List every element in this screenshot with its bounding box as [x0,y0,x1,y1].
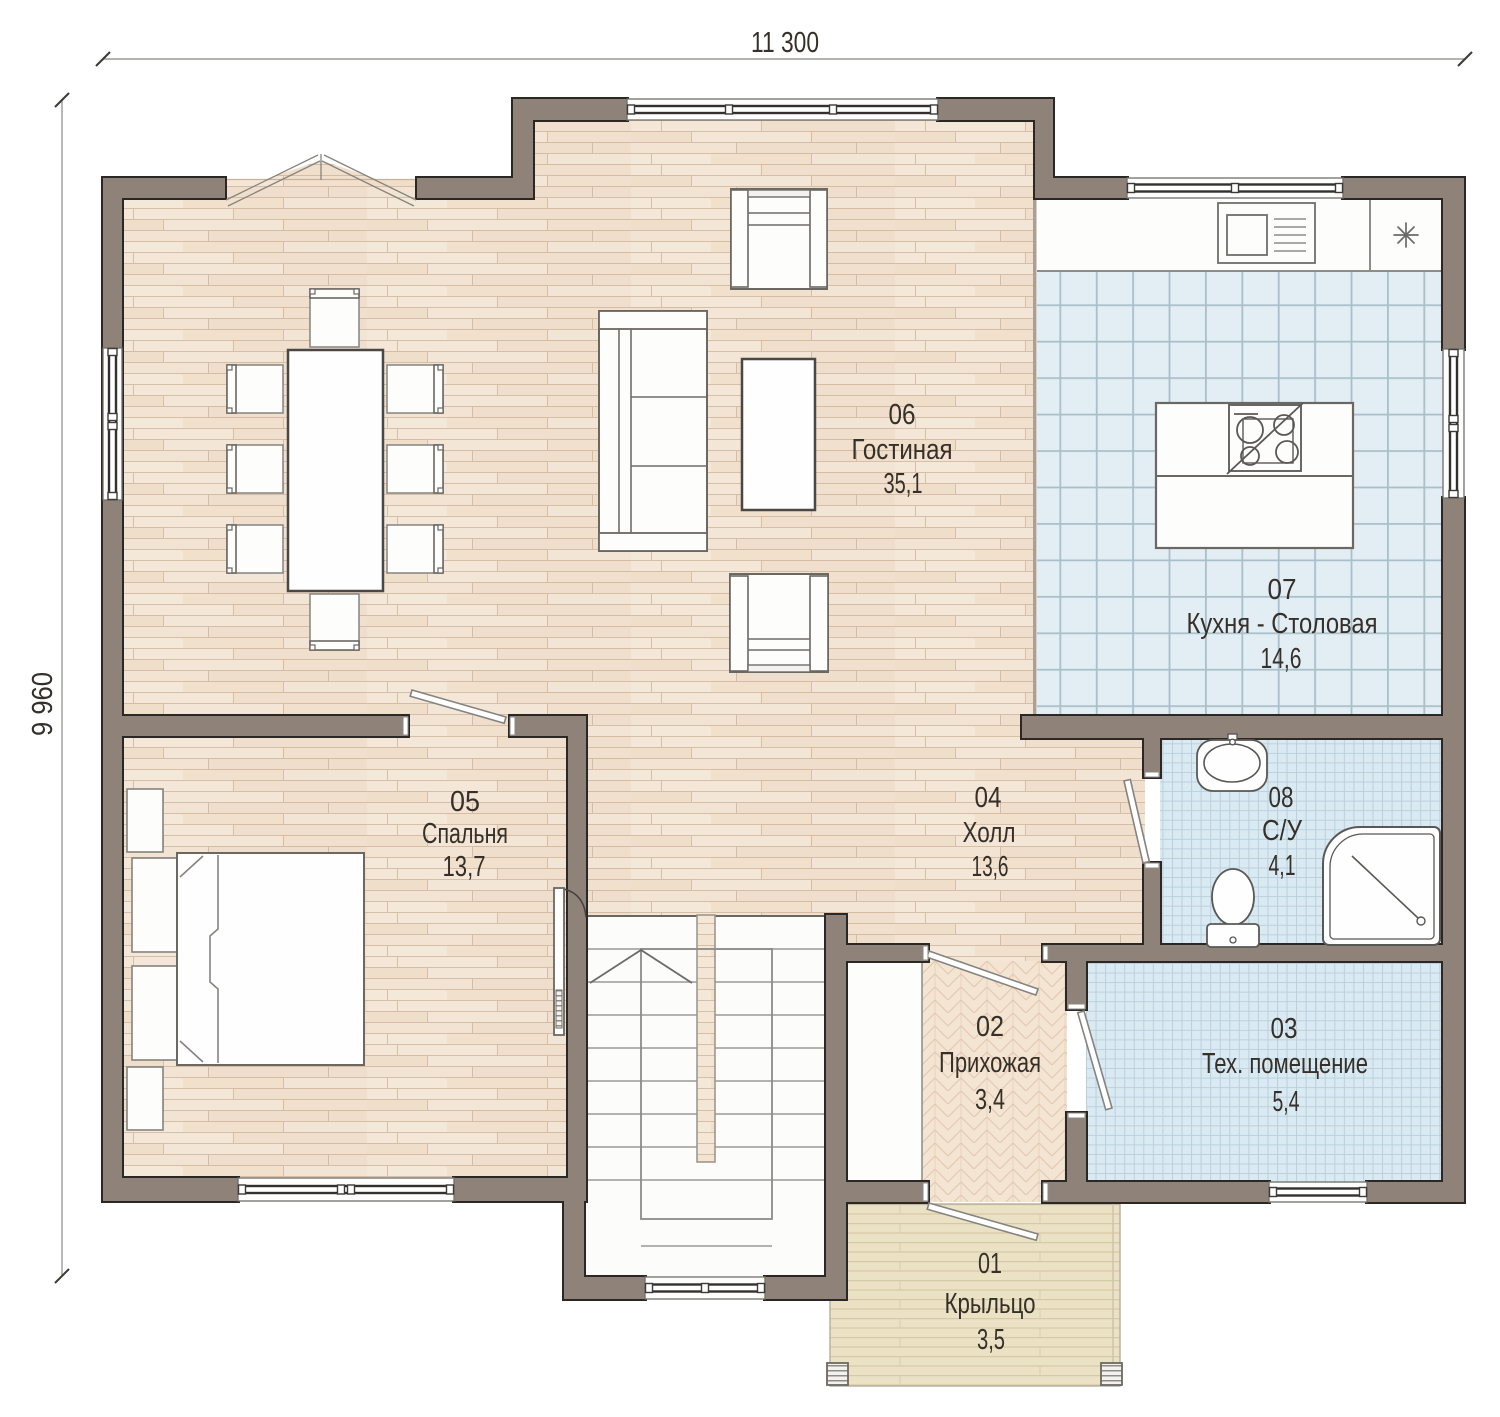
svg-text:35,1: 35,1 [884,468,923,500]
svg-text:Гостиная: Гостиная [852,434,953,466]
svg-text:9 960: 9 960 [27,672,59,736]
svg-text:С/У: С/У [1262,815,1302,847]
svg-text:Прихожая: Прихожая [939,1047,1041,1079]
svg-text:5,4: 5,4 [1273,1086,1300,1118]
svg-text:04: 04 [975,782,1002,814]
svg-text:Крыльцо: Крыльцо [945,1288,1036,1320]
svg-text:01: 01 [978,1248,1002,1280]
svg-text:05: 05 [450,786,480,818]
svg-text:06: 06 [889,399,916,431]
svg-text:13,7: 13,7 [443,851,486,883]
svg-text:14,6: 14,6 [1261,643,1302,675]
svg-text:4,1: 4,1 [1269,850,1296,882]
svg-text:3,5: 3,5 [977,1324,1005,1356]
svg-text:Тех. помещение: Тех. помещение [1202,1048,1368,1080]
svg-text:02: 02 [976,1011,1004,1043]
svg-text:13,6: 13,6 [972,851,1009,883]
svg-text:08: 08 [1269,782,1294,814]
svg-text:03: 03 [1271,1013,1298,1045]
svg-text:Холл: Холл [963,817,1016,849]
svg-text:Кухня - Столовая: Кухня - Столовая [1187,608,1378,640]
svg-text:3,4: 3,4 [975,1084,1005,1116]
svg-text:Спальня: Спальня [422,818,508,850]
svg-text:07: 07 [1268,574,1297,606]
svg-text:11 300: 11 300 [751,27,819,59]
